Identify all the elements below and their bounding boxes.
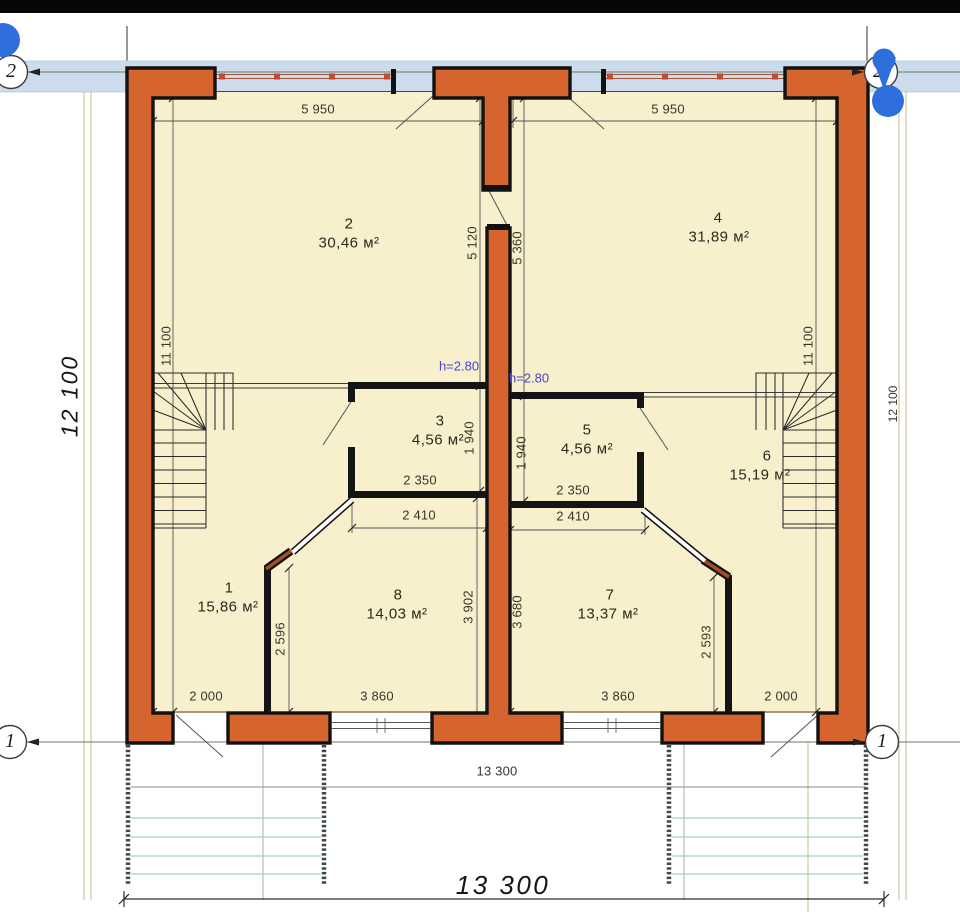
blue-marker-dot-right[interactable] (872, 85, 904, 117)
annotation-markers (0, 0, 960, 920)
floor-plan-page: 2 2 1 1 2 30,46 м² 4 31,89 м² 3 4,56 м² … (0, 0, 960, 920)
blue-marker-pin[interactable] (872, 49, 896, 91)
blue-marker-dot-left[interactable] (0, 23, 20, 57)
